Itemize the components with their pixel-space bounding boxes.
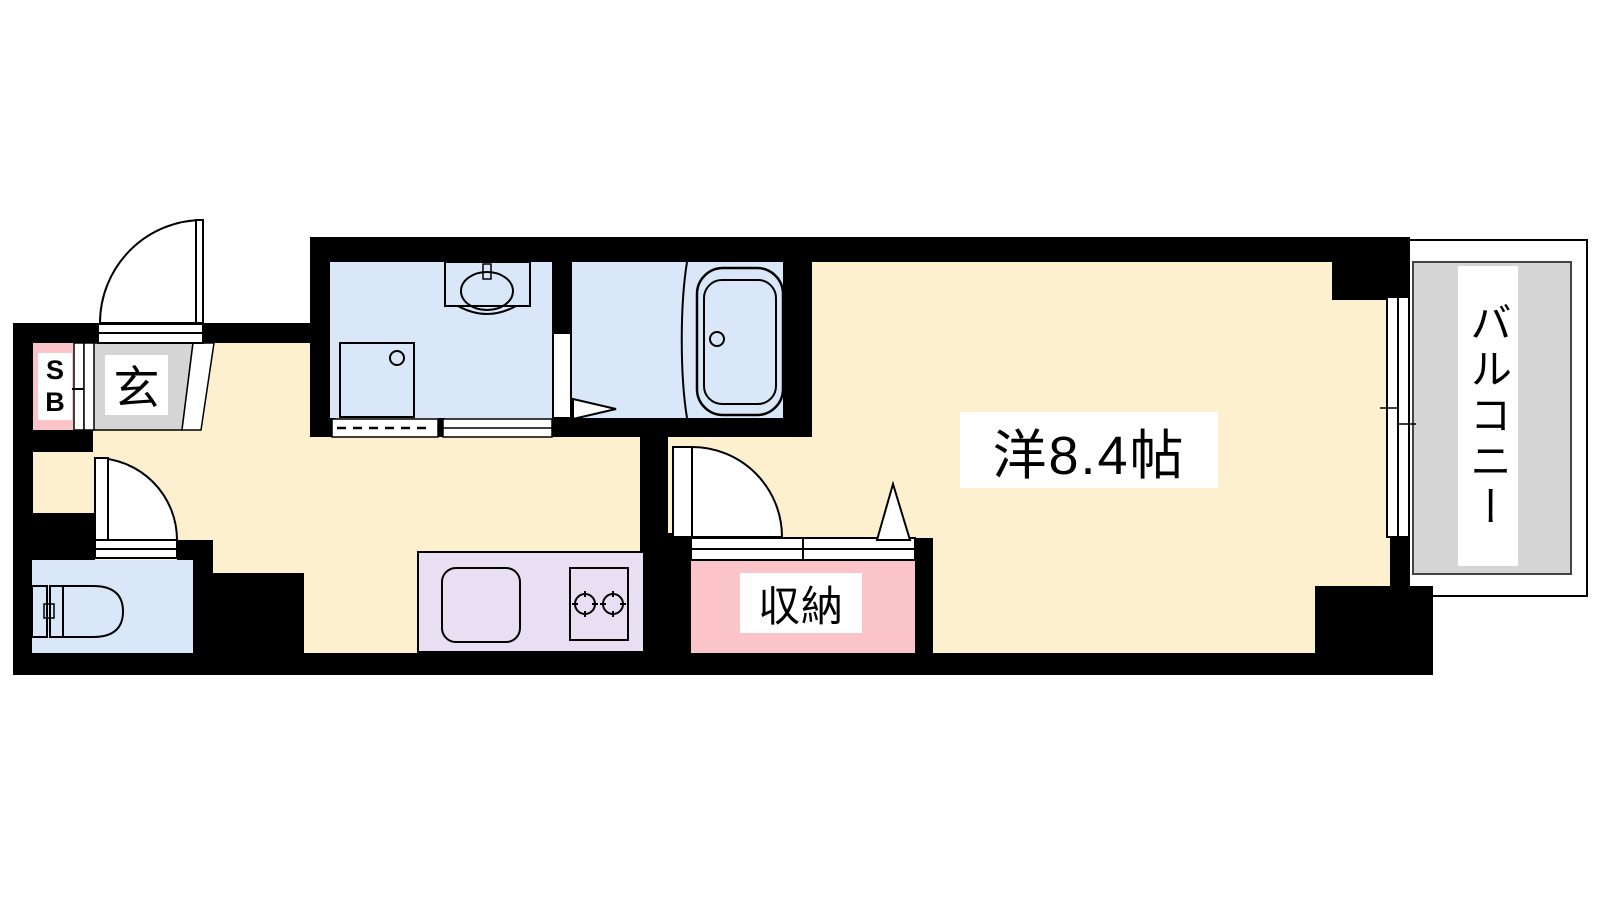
toilet-room-floor — [32, 560, 193, 653]
wall-left-of-toilet-door — [33, 513, 95, 560]
wall-top-right-corner — [1332, 237, 1410, 300]
wall-below-window — [1390, 537, 1410, 588]
floor-plan: S B 玄 収納 洋8.4帖 バルコニー — [0, 0, 1600, 900]
storage-label: 収納 — [740, 573, 862, 633]
shoe-box-label-bottom: B — [45, 387, 65, 418]
wall-hall-doorway — [640, 437, 668, 537]
washroom-floor — [330, 262, 552, 418]
wall-wet-bottom — [552, 418, 812, 437]
wall-washroom-left — [310, 262, 330, 437]
wall-toilet-right-block — [193, 573, 304, 653]
shoe-box-label-top: S — [46, 355, 64, 386]
balcony-label: バルコニー — [1458, 266, 1518, 566]
entrance-label: 玄 — [105, 355, 168, 415]
wall-closet-right — [915, 538, 933, 653]
wall-under-shoebox — [33, 430, 93, 452]
bathroom-floor — [572, 262, 783, 418]
wall-washroom-bottom-left — [310, 418, 336, 437]
wall-bath-room — [783, 262, 812, 418]
wall-top — [310, 237, 1390, 262]
wall-bottom — [13, 653, 1433, 675]
wall-washroom-bottom-mid — [438, 418, 445, 437]
kitchen-counter — [417, 551, 645, 653]
wall-closet-left — [640, 533, 692, 653]
shoe-box-label: S B — [38, 353, 72, 420]
wall-outer-left — [13, 323, 33, 675]
wall-bottom-right-corner — [1315, 586, 1433, 675]
western-room-label: 洋8.4帖 — [960, 412, 1218, 488]
wall-washroom-bath — [552, 262, 572, 333]
